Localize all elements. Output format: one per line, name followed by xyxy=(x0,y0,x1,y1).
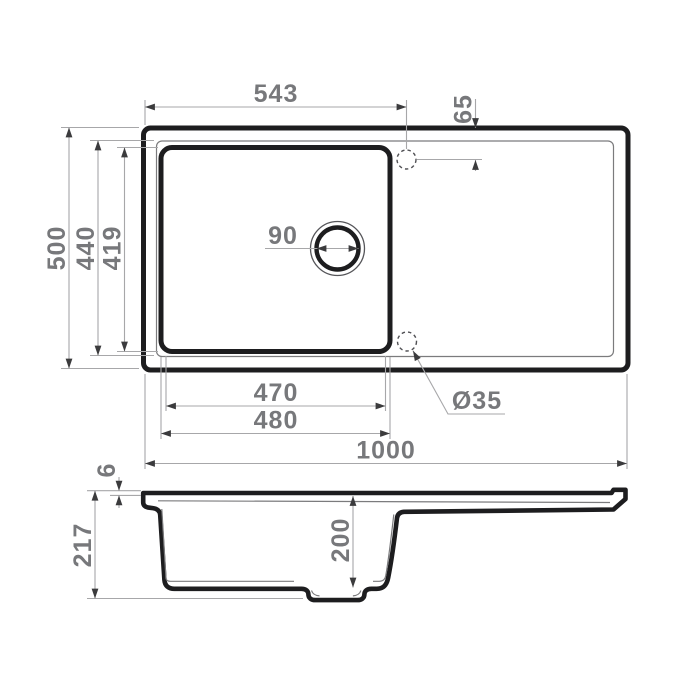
side-view-dimensions: 6 217 200 xyxy=(69,463,355,599)
dim-label-470: 470 xyxy=(254,379,299,407)
dim-label-543: 543 xyxy=(254,80,299,108)
dim-label-1000: 1000 xyxy=(356,437,416,465)
technical-drawing: 543 65 500 440 419 90 470 xyxy=(0,0,700,700)
dim-label-217: 217 xyxy=(69,523,97,568)
recess-fillet-left xyxy=(312,591,320,596)
sink-section-profile xyxy=(143,490,625,600)
dim-label-65: 65 xyxy=(450,94,478,124)
dim-label-500: 500 xyxy=(43,226,71,271)
dim-label-419: 419 xyxy=(99,226,127,271)
top-view xyxy=(144,128,629,370)
dim-label-480: 480 xyxy=(254,407,299,435)
dim-label-90: 90 xyxy=(268,222,298,250)
dim-label-tap-hole-diameter: Ø35 xyxy=(452,387,502,415)
drawing-canvas: 543 65 500 440 419 90 470 xyxy=(0,0,700,700)
dim-label-6: 6 xyxy=(93,463,121,478)
section-inner-top-line xyxy=(158,501,610,503)
dim-label-440: 440 xyxy=(72,226,100,271)
dim-label-200: 200 xyxy=(327,518,355,563)
recess-fillet-right xyxy=(353,591,361,596)
section-inner-left-line xyxy=(162,509,294,581)
side-view xyxy=(143,490,625,600)
